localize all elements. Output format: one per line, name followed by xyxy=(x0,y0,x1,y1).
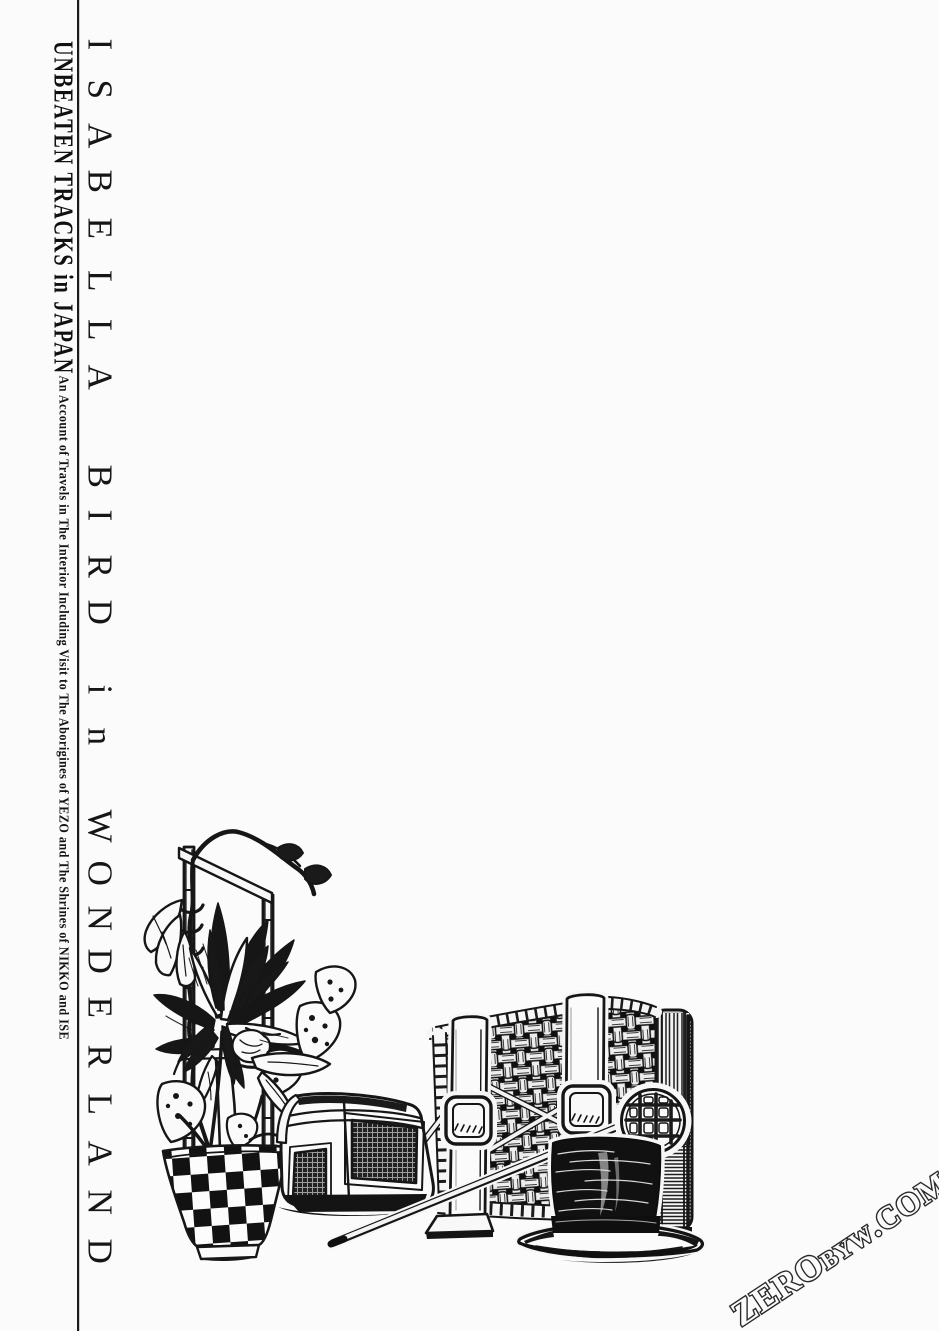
svg-text:An Account of Travels in The I: An Account of Travels in The Interior In… xyxy=(56,376,72,1040)
svg-text:ISABELLA BIRD in WONDERLAND: ISABELLA BIRD in WONDERLAND xyxy=(81,39,120,1264)
svg-text:ZEROBYW.COM: ZEROBYW.COM xyxy=(724,1162,939,1331)
svg-text:UNBEATEN TRACKS in JAPAN: UNBEATEN TRACKS in JAPAN xyxy=(48,41,77,373)
